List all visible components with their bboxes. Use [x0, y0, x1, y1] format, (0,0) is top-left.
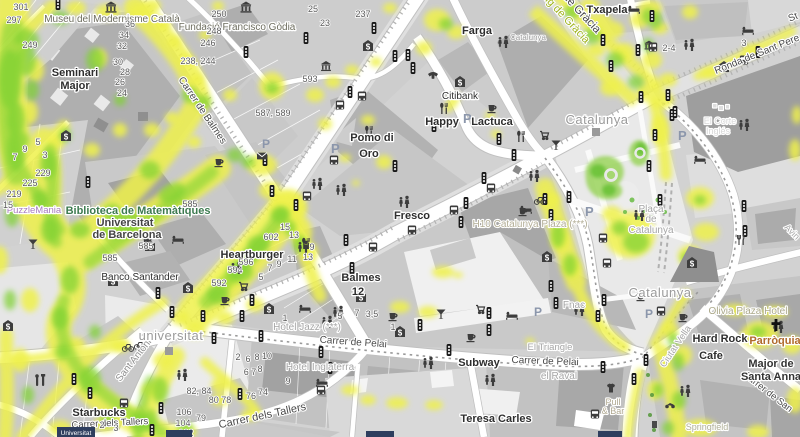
svg-text:P: P — [262, 137, 270, 151]
svg-text:76: 76 — [246, 391, 256, 401]
svg-text:79: 79 — [196, 413, 206, 423]
svg-text:301: 301 — [13, 2, 28, 12]
svg-text:2: 2 — [235, 352, 240, 362]
svg-text:P: P — [331, 141, 340, 156]
svg-text:585: 585 — [102, 253, 117, 263]
svg-text:P: P — [678, 128, 687, 143]
svg-text:Lactuca: Lactuca — [471, 116, 513, 128]
svg-text:Subway: Subway — [458, 357, 500, 369]
svg-text:El Triangle: El Triangle — [528, 342, 573, 353]
svg-text:5: 5 — [35, 137, 40, 147]
svg-text:Universitat: Universitat — [61, 430, 92, 437]
svg-text:249: 249 — [22, 40, 37, 50]
svg-text:Carrer de Pelai: Carrer de Pelai — [511, 355, 579, 368]
svg-text:7: 7 — [354, 308, 359, 318]
svg-text:1: 1 — [282, 313, 287, 323]
svg-text:el Raval: el Raval — [541, 371, 577, 382]
svg-text:Universitat: Universitat — [97, 217, 154, 229]
svg-text:Museu del Modernisme Català: Museu del Modernisme Català — [44, 14, 180, 25]
svg-text:Happy: Happy — [425, 116, 460, 128]
svg-text:Parròquia: Parròquia — [749, 335, 800, 347]
svg-text:12: 12 — [352, 286, 364, 298]
svg-text:585: 585 — [182, 199, 197, 209]
svg-text:36: 36 — [125, 19, 135, 29]
svg-text:3: 3 — [741, 38, 746, 48]
svg-text:23: 23 — [320, 18, 330, 28]
svg-text:24: 24 — [117, 88, 127, 98]
svg-text:8: 8 — [257, 364, 262, 374]
svg-text:246: 246 — [200, 38, 215, 48]
svg-text:2-4: 2-4 — [662, 43, 675, 53]
svg-text:Olivia Plaza Hotel: Olivia Plaza Hotel — [709, 306, 788, 317]
svg-text:Seminari: Seminari — [52, 67, 98, 79]
svg-text:82, 84: 82, 84 — [186, 386, 211, 396]
svg-text:1: 1 — [390, 322, 395, 332]
svg-text:de Barcelona: de Barcelona — [92, 229, 162, 241]
svg-text:238, 244: 238, 244 — [180, 56, 215, 66]
svg-text:11: 11 — [287, 254, 296, 264]
svg-text:297: 297 — [6, 15, 21, 25]
svg-text:P: P — [534, 305, 542, 319]
svg-text:602: 602 — [263, 232, 278, 242]
svg-text:3: 3 — [42, 150, 47, 160]
svg-text:Hotel Jazz (***): Hotel Jazz (***) — [273, 322, 341, 333]
svg-text:9: 9 — [22, 144, 27, 154]
svg-text:PuzzleMania: PuzzleMania — [7, 205, 62, 216]
svg-text:219: 219 — [6, 189, 21, 199]
svg-text:Starbucks: Starbucks — [72, 407, 125, 419]
svg-text:6 7: 6 7 — [244, 367, 257, 377]
svg-text:Inglés: Inglés — [706, 126, 731, 136]
svg-text:250: 250 — [211, 9, 226, 19]
svg-text:237: 237 — [355, 9, 370, 19]
svg-text:28: 28 — [120, 67, 130, 77]
svg-text:10: 10 — [262, 351, 272, 361]
svg-text:P: P — [585, 204, 594, 219]
svg-text:Catalunya: Catalunya — [628, 225, 673, 236]
svg-text:Major: Major — [60, 80, 90, 92]
svg-text:106: 106 — [176, 407, 191, 417]
svg-text:593: 593 — [302, 74, 317, 84]
svg-text:Txapela: Txapela — [587, 4, 629, 16]
svg-text:H10 Catalunya Plaza (***): H10 Catalunya Plaza (***) — [472, 219, 587, 230]
svg-text:Teresa Carles: Teresa Carles — [460, 413, 531, 425]
svg-text:Fundació Francisco Gòdia: Fundació Francisco Gòdia — [179, 22, 296, 33]
svg-text:15: 15 — [3, 200, 13, 210]
svg-text:Santa Anna: Santa Anna — [741, 371, 800, 383]
svg-text:6: 6 — [245, 354, 250, 364]
svg-text:Farga: Farga — [462, 25, 493, 37]
svg-text:Fresco: Fresco — [394, 210, 430, 222]
svg-text:248: 248 — [206, 26, 221, 36]
svg-text:229: 229 — [35, 168, 50, 178]
svg-text:2: 2 — [99, 420, 104, 430]
svg-text:Pomo di: Pomo di — [350, 132, 393, 144]
svg-text:Balmes: Balmes — [341, 272, 380, 284]
svg-text:592: 592 — [211, 278, 226, 288]
svg-text:universitat: universitat — [139, 328, 204, 343]
svg-text:Citibank: Citibank — [442, 91, 479, 102]
svg-text:8: 8 — [254, 352, 259, 362]
svg-text:25: 25 — [308, 4, 318, 14]
svg-text:P: P — [645, 307, 653, 321]
svg-text:Catalunya: Catalunya — [510, 33, 547, 42]
svg-text:Catalunya: Catalunya — [628, 285, 691, 300]
svg-text:585: 585 — [138, 241, 153, 251]
svg-text:5: 5 — [337, 311, 342, 321]
svg-text:587, 589: 587, 589 — [255, 108, 290, 118]
svg-text:Cafe: Cafe — [699, 350, 723, 362]
svg-text:34: 34 — [119, 30, 129, 40]
svg-text:74: 74 — [258, 387, 268, 397]
svg-text:80 78: 80 78 — [209, 395, 232, 405]
svg-text:26: 26 — [115, 77, 125, 87]
svg-text:3,5: 3,5 — [366, 309, 379, 319]
svg-text:Hard Rock: Hard Rock — [692, 333, 748, 345]
svg-text:225: 225 — [22, 178, 37, 188]
svg-text:104: 104 — [175, 418, 190, 428]
svg-text:9: 9 — [276, 259, 281, 269]
svg-text:13: 13 — [289, 230, 299, 240]
svg-text:Hotel Inglaterra: Hotel Inglaterra — [286, 362, 355, 373]
svg-text:7: 7 — [12, 152, 17, 162]
svg-text:Banco Santander: Banco Santander — [101, 272, 179, 283]
svg-text:5: 5 — [258, 272, 263, 282]
svg-text:594: 594 — [227, 265, 242, 275]
svg-text:7: 7 — [267, 263, 272, 273]
svg-text:Springfield: Springfield — [686, 422, 729, 432]
svg-text:de: de — [645, 214, 657, 225]
svg-text:13: 13 — [303, 252, 313, 262]
svg-text:Major de: Major de — [748, 358, 793, 370]
svg-text:El Corte: El Corte — [704, 116, 737, 126]
svg-text:30: 30 — [113, 57, 123, 67]
svg-text:9: 9 — [285, 376, 290, 386]
svg-text:Catalunya: Catalunya — [565, 112, 628, 127]
svg-text:9: 9 — [309, 242, 314, 252]
svg-text:3: 3 — [113, 423, 118, 433]
svg-text:Fnac: Fnac — [563, 300, 585, 311]
svg-text:Oro: Oro — [359, 148, 379, 160]
svg-text:& Bar: & Bar — [602, 406, 625, 416]
svg-text:32: 32 — [117, 41, 127, 51]
